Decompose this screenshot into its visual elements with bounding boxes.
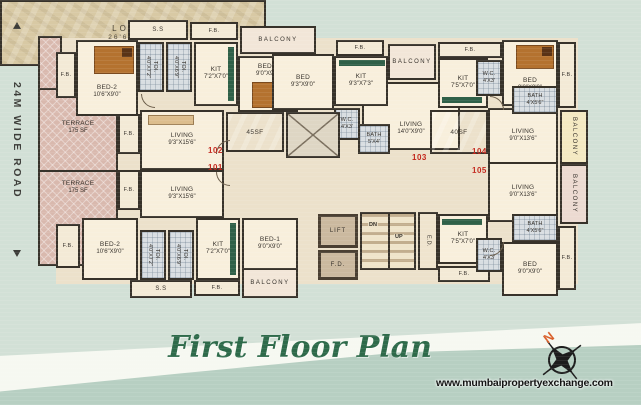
room-kitchen-101: KIT7'2"X7'0" — [196, 218, 240, 280]
kitchen-platform-icon — [228, 47, 234, 101]
road-arrow-up-icon — [13, 22, 21, 29]
flower-bed: F.B. — [438, 42, 502, 58]
room-toilet-102-a: TOI.4'0"X7'2" — [138, 42, 164, 92]
unit-badge-101: 101 — [208, 163, 223, 172]
room-bed2-101: BED-210'6"X9'0" — [82, 218, 138, 280]
room-bed1-101: BED-19'0"X9'0" — [242, 218, 298, 270]
room-bed2-102: BED-210'6"X9'0" — [76, 40, 138, 116]
balcony-bottom: BALCONY — [242, 268, 298, 298]
balcony-103: BALCONY — [388, 44, 436, 80]
room-bed-103: BED9'3"X9'0" — [272, 54, 334, 110]
ss-box-top: S.S — [128, 20, 188, 40]
pillow-icon — [542, 47, 552, 56]
flower-bed: F.B. — [56, 52, 76, 98]
room-bath-103: BATH5'X4' — [358, 124, 390, 154]
unit-badge-102: 102 — [208, 146, 223, 155]
room-toilet-101-a: TOI.4'0"X7'2" — [140, 230, 166, 280]
unit-badge-105: 105 — [472, 166, 487, 175]
room-lift: LIFT — [318, 214, 358, 248]
ss-box-bottom: S.S — [130, 280, 192, 298]
room-bed-105: BED9'0"X9'0" — [502, 242, 558, 296]
unit-badge-104: 104 — [472, 147, 487, 156]
room-electrical-duct: E.D. — [418, 212, 438, 270]
bed-icon — [516, 45, 554, 69]
balcony-105: BALCONY — [560, 164, 588, 224]
room-kitchen-102: KIT7'2"X7'0" — [194, 42, 238, 106]
flower-bed: F.B. — [118, 114, 140, 154]
kitchen-platform-icon — [339, 60, 385, 66]
flower-bed: F.B. — [56, 224, 80, 268]
room-bath-105: BATH4'X5'6" — [512, 214, 558, 242]
room-toilet-102-b: TOI.4'0"X6'9" — [166, 42, 192, 92]
flower-bed: F.B. — [194, 280, 240, 296]
cross-icon — [288, 114, 338, 156]
balcony-104: BALCONY — [560, 110, 588, 164]
road-arrow-down-icon — [13, 250, 21, 257]
room-bath-104: BATH4'X5'6" — [512, 86, 558, 114]
terrace-45sf: 45SF — [226, 112, 284, 152]
stair-dn-label: DN — [368, 222, 378, 228]
sofa-icon — [148, 115, 194, 125]
flower-bed: F.B. — [558, 42, 576, 108]
room-toilet-101-b: TOI.4'0"X6'9" — [168, 230, 194, 280]
room-fire-duct: F.D. — [318, 250, 358, 280]
watermark: www.mumbaipropertyexchange.com — [436, 377, 613, 389]
stair-up-label: UP — [394, 234, 404, 240]
pillow-icon — [122, 48, 132, 57]
plan-title: First Floor Plan — [120, 330, 480, 365]
flower-bed: F.B. — [118, 170, 140, 210]
room-wc-104: W.C.4'X3' — [476, 60, 502, 96]
room-living-101: LIVING9'3"X15'6" — [140, 170, 224, 218]
room-living-104: LIVING9'0"X13'6" — [488, 108, 558, 164]
kitchen-platform-icon — [230, 223, 236, 275]
kitchen-platform-icon — [442, 219, 482, 225]
staircase: DN UP — [360, 212, 416, 270]
road-label: 24M WIDE ROAD — [6, 36, 28, 246]
kitchen-platform-icon — [442, 97, 482, 103]
duct-shaft — [286, 112, 340, 158]
bed-icon — [94, 46, 134, 74]
floor-plan-page: 24M WIDE ROAD TERRACE175 SF TERRACE175 S… — [0, 0, 641, 405]
flower-bed: F.B. — [558, 226, 576, 290]
unit-badge-103: 103 — [412, 153, 427, 162]
flower-bed: F.B. — [190, 22, 238, 40]
stair-divider — [388, 214, 390, 268]
flower-bed: F.B. — [336, 40, 384, 56]
room-kitchen-103: KIT9'3"X7'3" — [334, 56, 388, 106]
room-living-102: LIVING9'3"X15'6" — [140, 110, 224, 170]
room-living-105: LIVING9'0"X13'6" — [488, 162, 558, 222]
balcony-top: BALCONY — [240, 26, 316, 54]
